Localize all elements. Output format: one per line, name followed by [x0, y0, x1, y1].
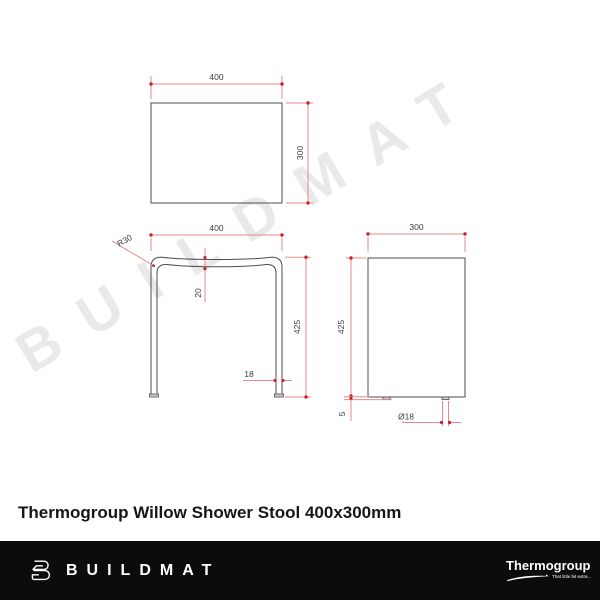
front-left-foot [150, 394, 159, 397]
side-depth-dimension: 300 [366, 222, 466, 252]
front-view: 400 R30 20 425 [112, 223, 311, 399]
thermogroup-logo: Thermogroup That little bit extra... [506, 559, 578, 582]
foot-height-label: 5 [337, 411, 347, 416]
side-view-outline [368, 258, 465, 397]
seat-thickness-dimension: 20 [193, 248, 207, 302]
side-right-foot [442, 397, 449, 400]
front-view-inner-profile [157, 264, 276, 394]
foot-diameter-label: Ø18 [398, 412, 414, 422]
buildmat-wordmark: BUILDMAT [66, 562, 220, 580]
thermogroup-tagline: That little bit extra... [552, 574, 591, 580]
front-right-foot [275, 394, 284, 397]
front-width-label: 400 [209, 223, 223, 233]
corner-radius-label: R30 [115, 232, 134, 249]
leg-width-label: 18 [244, 369, 254, 379]
buildmat-brand: BUILDMAT [30, 560, 220, 581]
footer-bar: BUILDMAT Thermogroup That little bit ext… [0, 541, 600, 600]
technical-drawing: 400 300 400 [0, 0, 600, 470]
top-view: 400 300 [149, 72, 313, 205]
seat-thickness-label: 20 [193, 288, 203, 298]
top-view-width-dimension: 400 [149, 72, 283, 99]
thermogroup-swoosh-icon [506, 574, 550, 582]
front-height-dimension: 425 [285, 256, 311, 399]
top-view-outline [151, 103, 282, 203]
thermogroup-tagline-row: That little bit extra... [506, 574, 591, 582]
side-height-label: 425 [336, 320, 346, 334]
product-title: Thermogroup Willow Shower Stool 400x300m… [18, 503, 401, 523]
foot-diameter-dimension: Ø18 [398, 401, 461, 426]
front-view-outer-profile [151, 257, 282, 394]
front-width-dimension: 400 [149, 223, 283, 251]
foot-height-dimension: 5 [337, 397, 392, 421]
side-height-dimension: 425 [336, 256, 366, 397]
top-view-depth-dimension: 300 [286, 101, 313, 204]
top-view-depth-label: 300 [295, 146, 305, 160]
side-view: 300 425 5 [336, 222, 467, 426]
leg-width-dimension: 18 [243, 369, 292, 382]
corner-radius-callout: R30 [112, 232, 155, 267]
spec-sheet: BUILDMAT 400 300 [0, 0, 600, 600]
side-depth-label: 300 [409, 222, 423, 232]
top-view-width-label: 400 [209, 72, 223, 82]
thermogroup-wordmark: Thermogroup [506, 559, 591, 573]
front-height-label: 425 [292, 320, 302, 334]
buildmat-logo-icon [30, 560, 53, 581]
